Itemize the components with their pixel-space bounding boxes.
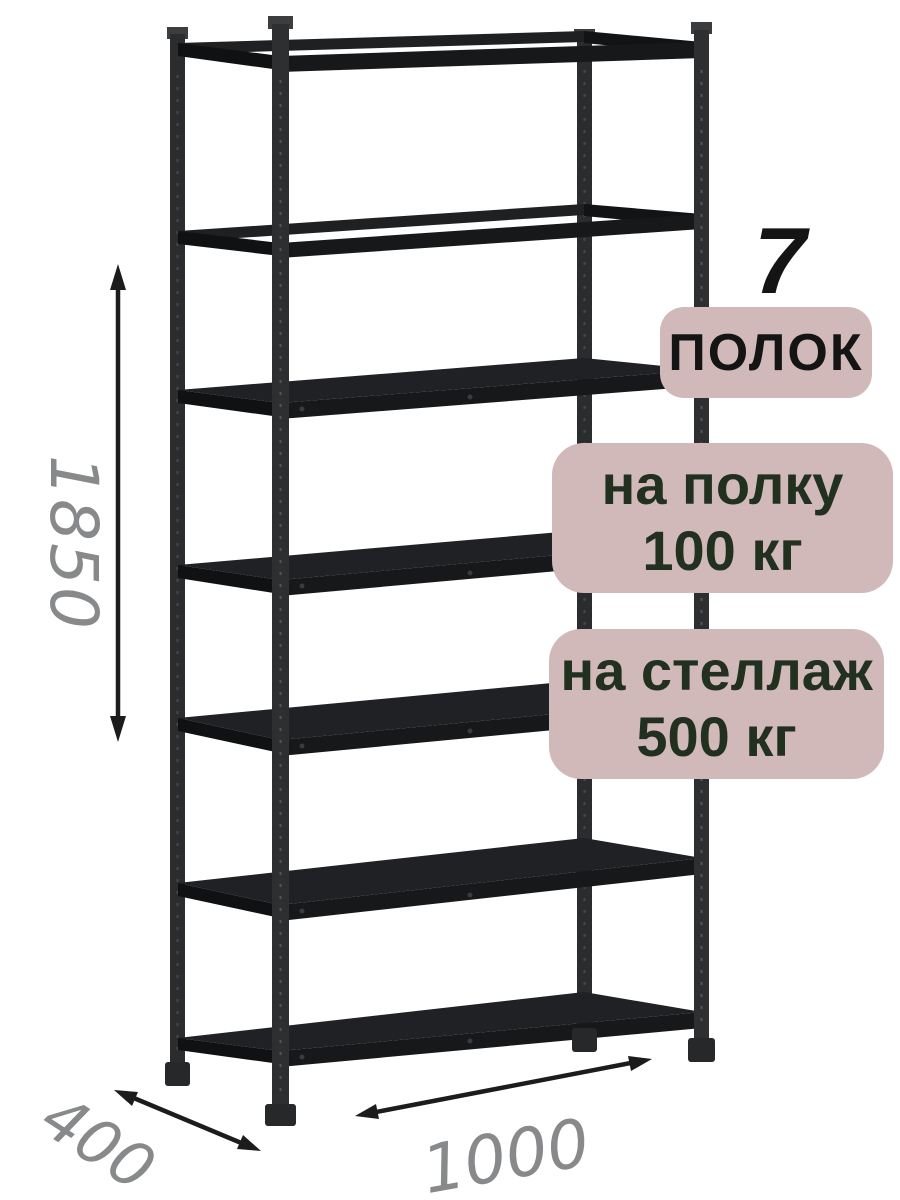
rack-shelf-3 [178, 358, 702, 419]
rack-shelf-2 [178, 204, 702, 258]
height-dimension-label: 1850 [38, 455, 108, 625]
shelf-count-number: 7 [718, 214, 842, 308]
rack-shelf-6 [178, 838, 702, 921]
product-image: 1850 400 1000 7 ПОЛОК на полку 100 кг на… [0, 0, 900, 1200]
shelf-load-line1: на полку [602, 452, 844, 518]
shelf-load-badge: на полку 100 кг [552, 443, 893, 593]
shelf-count-label: ПОЛОК [668, 327, 863, 379]
rack-shelf-7 [178, 992, 702, 1067]
rack-load-line1: на стеллаж [560, 638, 872, 704]
shelving-rack-illustration [0, 0, 900, 1200]
shelf-load-line2: 100 кг [642, 518, 802, 584]
rack-load-line2: 500 кг [636, 704, 796, 770]
height-dimension-arrow [110, 264, 126, 742]
shelf-count-badge: ПОЛОК [660, 307, 872, 398]
width-dimension-arrow [355, 1056, 652, 1119]
rack-shelf-1 [178, 31, 702, 72]
rack-load-badge: на стеллаж 500 кг [549, 629, 884, 779]
